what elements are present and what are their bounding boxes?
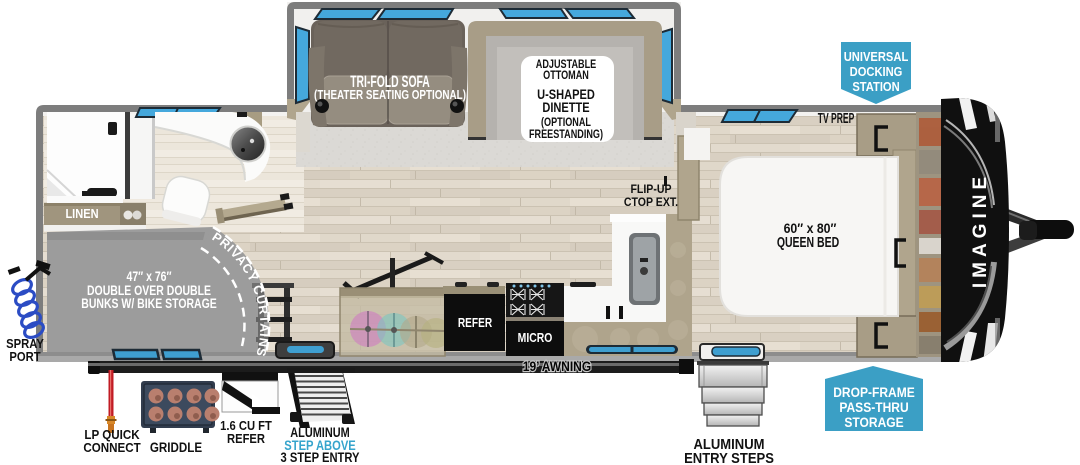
svg-text:PORT: PORT [9,349,41,364]
svg-text:MICRO: MICRO [518,331,553,345]
svg-text:UNIVERSAL: UNIVERSAL [844,49,909,64]
svg-text:LINEN: LINEN [65,206,98,221]
svg-text:GRIDDLE: GRIDDLE [150,439,203,455]
svg-text:STEP ABOVE: STEP ABOVE [284,438,355,453]
svg-text:REFER: REFER [227,431,265,446]
svg-text:TRI-FOLD SOFA: TRI-FOLD SOFA [350,73,430,91]
svg-text:OTTOMAN: OTTOMAN [543,70,589,82]
svg-text:PASS-THRU: PASS-THRU [839,399,908,415]
svg-text:STORAGE: STORAGE [844,414,904,430]
svg-text:19’ AWNING: 19’ AWNING [523,358,591,374]
svg-text:CONNECT: CONNECT [83,440,141,455]
svg-text:QUEEN BED: QUEEN BED [777,233,839,250]
svg-text:STATION: STATION [852,79,899,94]
svg-text:IMAGINE: IMAGINE [970,172,991,288]
svg-text:CTOP EXT.: CTOP EXT. [624,196,678,209]
svg-text:REFER: REFER [458,316,493,330]
svg-text:DINETTE: DINETTE [542,100,589,116]
svg-text:(THEATER SEATING OPTIONAL): (THEATER SEATING OPTIONAL) [314,89,466,102]
svg-text:FREESTANDING): FREESTANDING) [529,129,603,141]
svg-text:ENTRY STEPS: ENTRY STEPS [684,449,774,465]
svg-text:BUNKS W/ BIKE STORAGE: BUNKS W/ BIKE STORAGE [81,296,217,312]
svg-text:TV PREP: TV PREP [818,109,855,126]
svg-text:DOCKING: DOCKING [850,64,903,79]
svg-text:DROP-FRAME: DROP-FRAME [833,384,915,400]
svg-text:(OPTIONAL: (OPTIONAL [541,117,592,129]
